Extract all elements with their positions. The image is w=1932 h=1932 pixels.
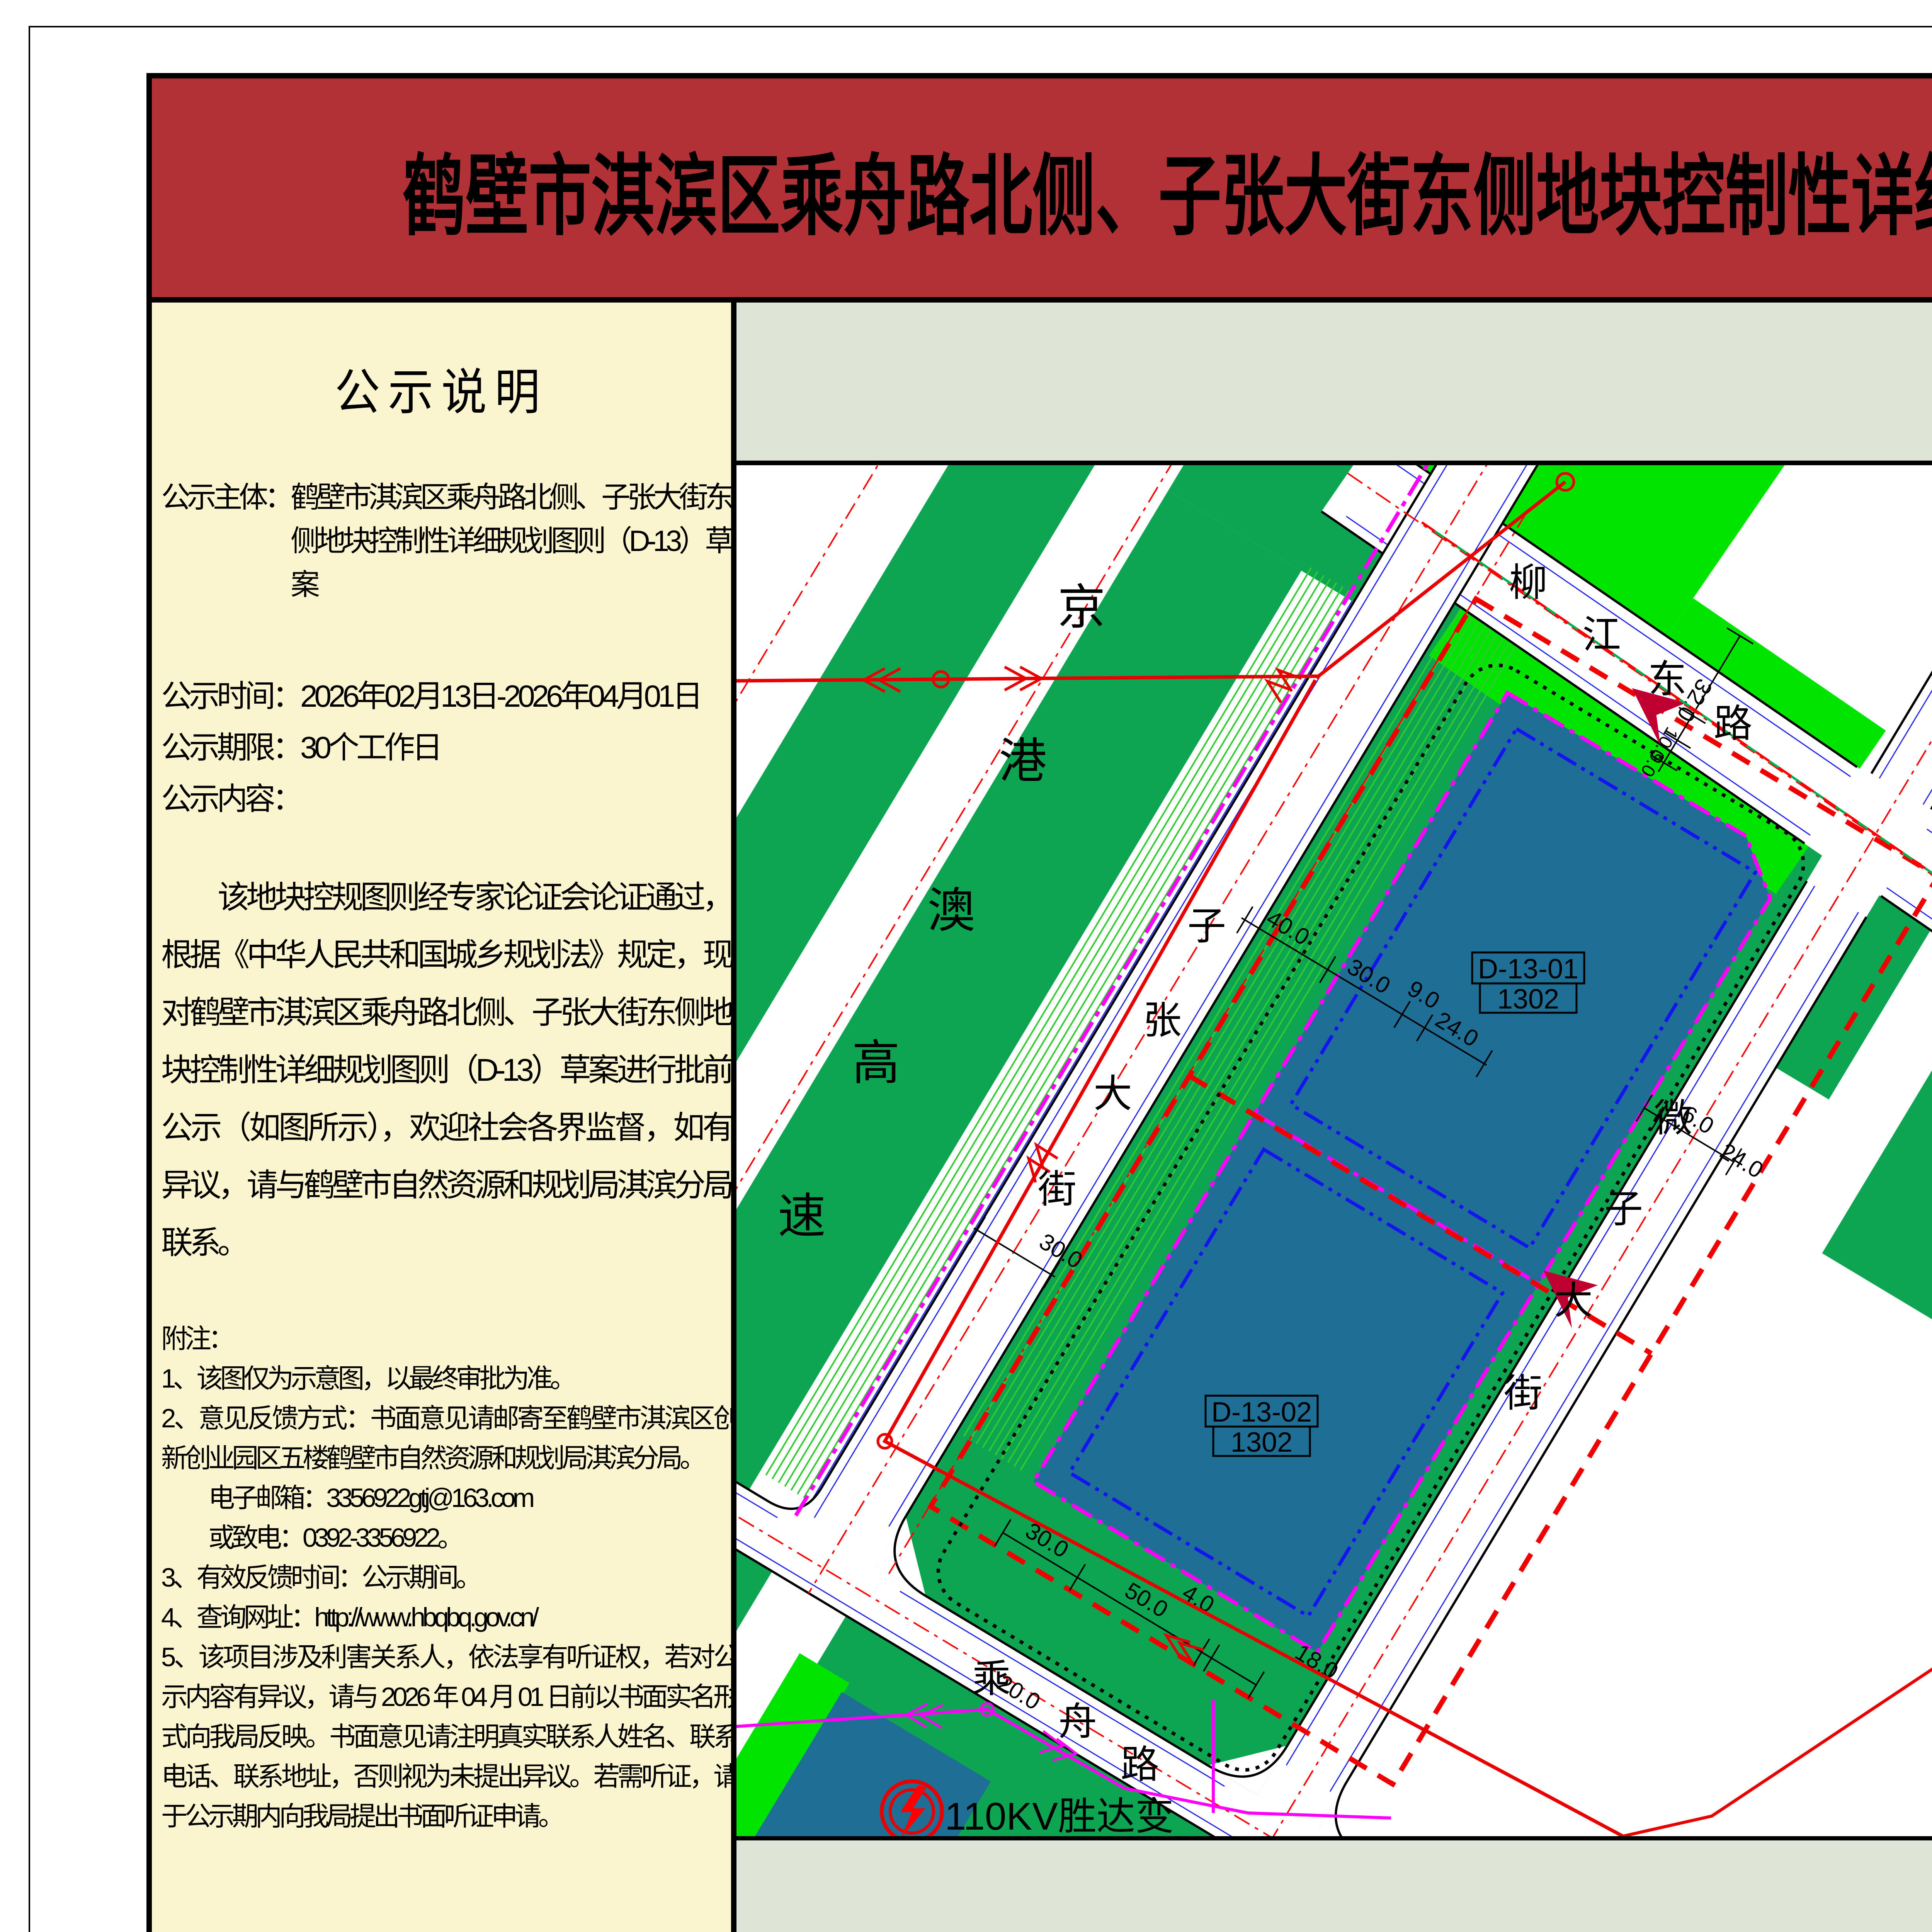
svg-text:高: 高 [852, 1036, 900, 1090]
svg-text:D-13-01: D-13-01 [1478, 954, 1578, 985]
svg-text:子: 子 [1604, 1187, 1643, 1231]
svg-text:子: 子 [1187, 905, 1226, 948]
svg-text:舟: 舟 [1058, 1700, 1097, 1743]
svg-text:街: 街 [1504, 1372, 1543, 1415]
svg-text:柳: 柳 [1509, 561, 1548, 604]
svg-text:速: 速 [778, 1190, 826, 1243]
svg-text:大: 大 [1094, 1072, 1132, 1116]
svg-text:路: 路 [1121, 1743, 1159, 1786]
svg-text:澳: 澳 [927, 884, 975, 937]
svg-text:110KV胜达变: 110KV胜达变 [945, 1795, 1174, 1836]
svg-text:1302: 1302 [1497, 984, 1559, 1015]
svg-text:港: 港 [999, 735, 1047, 788]
svg-text:东: 东 [1648, 658, 1687, 701]
svg-text:乘: 乘 [972, 1657, 1011, 1701]
svg-text:微: 微 [1654, 1097, 1692, 1140]
svg-text:江: 江 [1582, 613, 1621, 656]
svg-text:D-13-02: D-13-02 [1211, 1397, 1312, 1428]
svg-text:街: 街 [1038, 1168, 1077, 1211]
svg-text:大: 大 [1554, 1279, 1593, 1322]
svg-text:路: 路 [1714, 702, 1752, 745]
svg-text:京: 京 [1058, 581, 1105, 634]
svg-text:张: 张 [1143, 999, 1182, 1042]
svg-text:1302: 1302 [1231, 1427, 1293, 1458]
